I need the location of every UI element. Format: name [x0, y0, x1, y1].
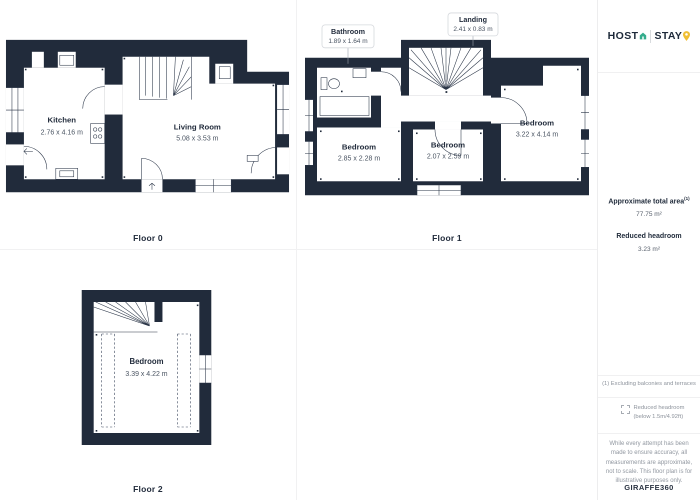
floorplan-page: Kitchen 2.76 x 4.16 m Living Room 5.08 x… — [0, 0, 700, 500]
floor-1-drawing: Bathroom 1.89 x 1.64 m Landing 2.41 x 0.… — [297, 0, 597, 249]
brand-host-text: HOST — [608, 30, 639, 42]
reduced-headroom-label: Reduced headroom — [598, 233, 700, 240]
bedroom-attic-name: Bedroom — [129, 357, 163, 366]
kitchen-name: Kitchen — [48, 116, 77, 125]
floor-2-label: Floor 2 — [0, 484, 296, 494]
bedroom-left-name: Bedroom — [342, 142, 376, 151]
floor-2-drawing: Bedroom 3.39 x 4.22 m — [0, 250, 296, 500]
info-sidebar: HOST STAY Approximate total area(1) 77.7… — [597, 0, 700, 500]
total-area-label-text: Approximate total area — [608, 198, 684, 205]
giraffe360-logo: GIRAFFE360 — [598, 483, 700, 492]
bathroom-name: Bathroom — [331, 28, 365, 36]
floor-0-label: Floor 0 — [0, 233, 296, 243]
brand-stay-text: STAY — [654, 30, 682, 42]
bedroom-middle-name: Bedroom — [431, 140, 465, 149]
kitchen-dims: 2.76 x 4.16 m — [41, 129, 83, 136]
floor-2-cell: Bedroom 3.39 x 4.22 m Floor 2 — [0, 250, 297, 500]
bathroom-dims: 1.89 x 1.64 m — [328, 38, 367, 45]
total-area-label: Approximate total area(1) — [598, 196, 700, 205]
bedroom-right-name: Bedroom — [520, 119, 554, 128]
giraffe360-name: GIRAFFE — [624, 483, 660, 492]
total-area-footnote-marker: (1) — [684, 196, 690, 201]
living-room-name: Living Room — [174, 122, 221, 131]
brand-separator — [650, 30, 651, 43]
living-room-dims: 5.08 x 3.53 m — [176, 135, 218, 142]
total-area-value: 77.75 m² — [598, 211, 700, 218]
plans-grid: Kitchen 2.76 x 4.16 m Living Room 5.08 x… — [0, 0, 597, 500]
host-house-icon — [639, 32, 647, 40]
sidebar-divider-bottom — [598, 433, 700, 434]
bedroom-attic-dims: 3.39 x 4.22 m — [125, 371, 167, 378]
bedroom-left-dims: 2.85 x 2.28 m — [338, 155, 381, 162]
bedroom-middle-dims: 2.07 x 2.59 m — [427, 153, 470, 160]
floor-1-cell: Bathroom 1.89 x 1.64 m Landing 2.41 x 0.… — [297, 0, 597, 250]
landing-name: Landing — [459, 16, 487, 24]
sidebar-divider-mid — [598, 397, 700, 398]
reduced-headroom-value: 3.23 m² — [598, 246, 700, 253]
landing-dims: 2.41 x 0.83 m — [453, 26, 492, 33]
giraffe360-suffix: 360 — [660, 483, 674, 492]
reduced-headroom-legend-text: Reduced headroom (below 1.5m/4.92ft) — [634, 404, 690, 421]
floor-1-label: Floor 1 — [297, 233, 597, 243]
floor-0-cell: Kitchen 2.76 x 4.16 m Living Room 5.08 x… — [0, 0, 297, 250]
floor-0-drawing: Kitchen 2.76 x 4.16 m Living Room 5.08 x… — [0, 0, 296, 249]
reduced-headroom-legend: Reduced headroom (below 1.5m/4.92ft) — [612, 404, 698, 421]
sidebar-divider-top — [598, 375, 700, 376]
area-stats: Approximate total area(1) 77.75 m² Reduc… — [598, 196, 700, 253]
area-footnote: (1) Excluding balconies and terraces — [598, 381, 700, 387]
disclaimer-text: While every attempt has been made to ens… — [605, 440, 693, 486]
floor2-walls — [82, 290, 212, 445]
bedroom-right-dims: 3.22 x 4.14 m — [516, 131, 559, 138]
empty-cell — [297, 250, 597, 500]
stay-pin-icon — [683, 31, 690, 41]
brand-logo: HOST STAY — [598, 0, 700, 73]
reduced-headroom-swatch-icon — [621, 405, 630, 414]
